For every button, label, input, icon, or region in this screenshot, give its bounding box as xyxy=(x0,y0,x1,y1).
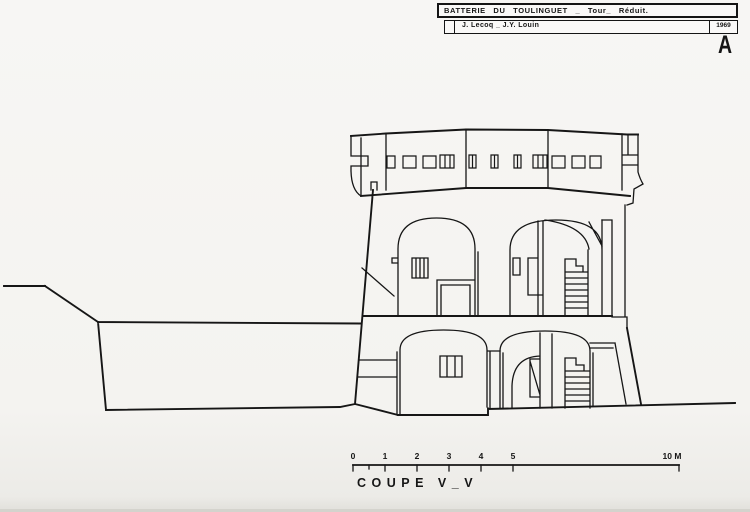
title-block-spacer-cell xyxy=(445,21,455,33)
parapet-windows xyxy=(387,155,601,168)
drawing-sheet: BATTERIE DU TOULINGUET _ Tour_ Réduit. J… xyxy=(0,0,750,512)
scale-tick-label-4: 4 xyxy=(479,451,484,461)
title-block-authors-row: J. Lecoq _ J.Y. Louin 1969 xyxy=(444,20,738,34)
title-block-title-row: BATTERIE DU TOULINGUET _ Tour_ Réduit. xyxy=(437,3,738,18)
plate-letter: A xyxy=(713,32,736,58)
scale-tick-label-2: 2 xyxy=(415,451,420,461)
lower-right-room xyxy=(500,331,593,408)
section-caption: COUPE V_V xyxy=(357,476,478,490)
lower-left-room xyxy=(358,330,500,415)
scale-tick-label-5: 5 xyxy=(511,451,516,461)
scale-tick-label-3: 3 xyxy=(447,451,452,461)
scale-tick-label-0: 0 xyxy=(351,451,356,461)
drawing-title: BATTERIE DU TOULINGUET _ Tour_ Réduit. xyxy=(444,6,648,15)
authors-label: J. Lecoq _ J.Y. Louin xyxy=(455,21,709,33)
upper-left-room xyxy=(362,218,478,316)
scale-tick-label-1: 1 xyxy=(383,451,388,461)
section-drawing xyxy=(0,0,750,512)
scale-end-label: 10 M xyxy=(663,451,682,461)
upper-right-room xyxy=(510,220,602,316)
